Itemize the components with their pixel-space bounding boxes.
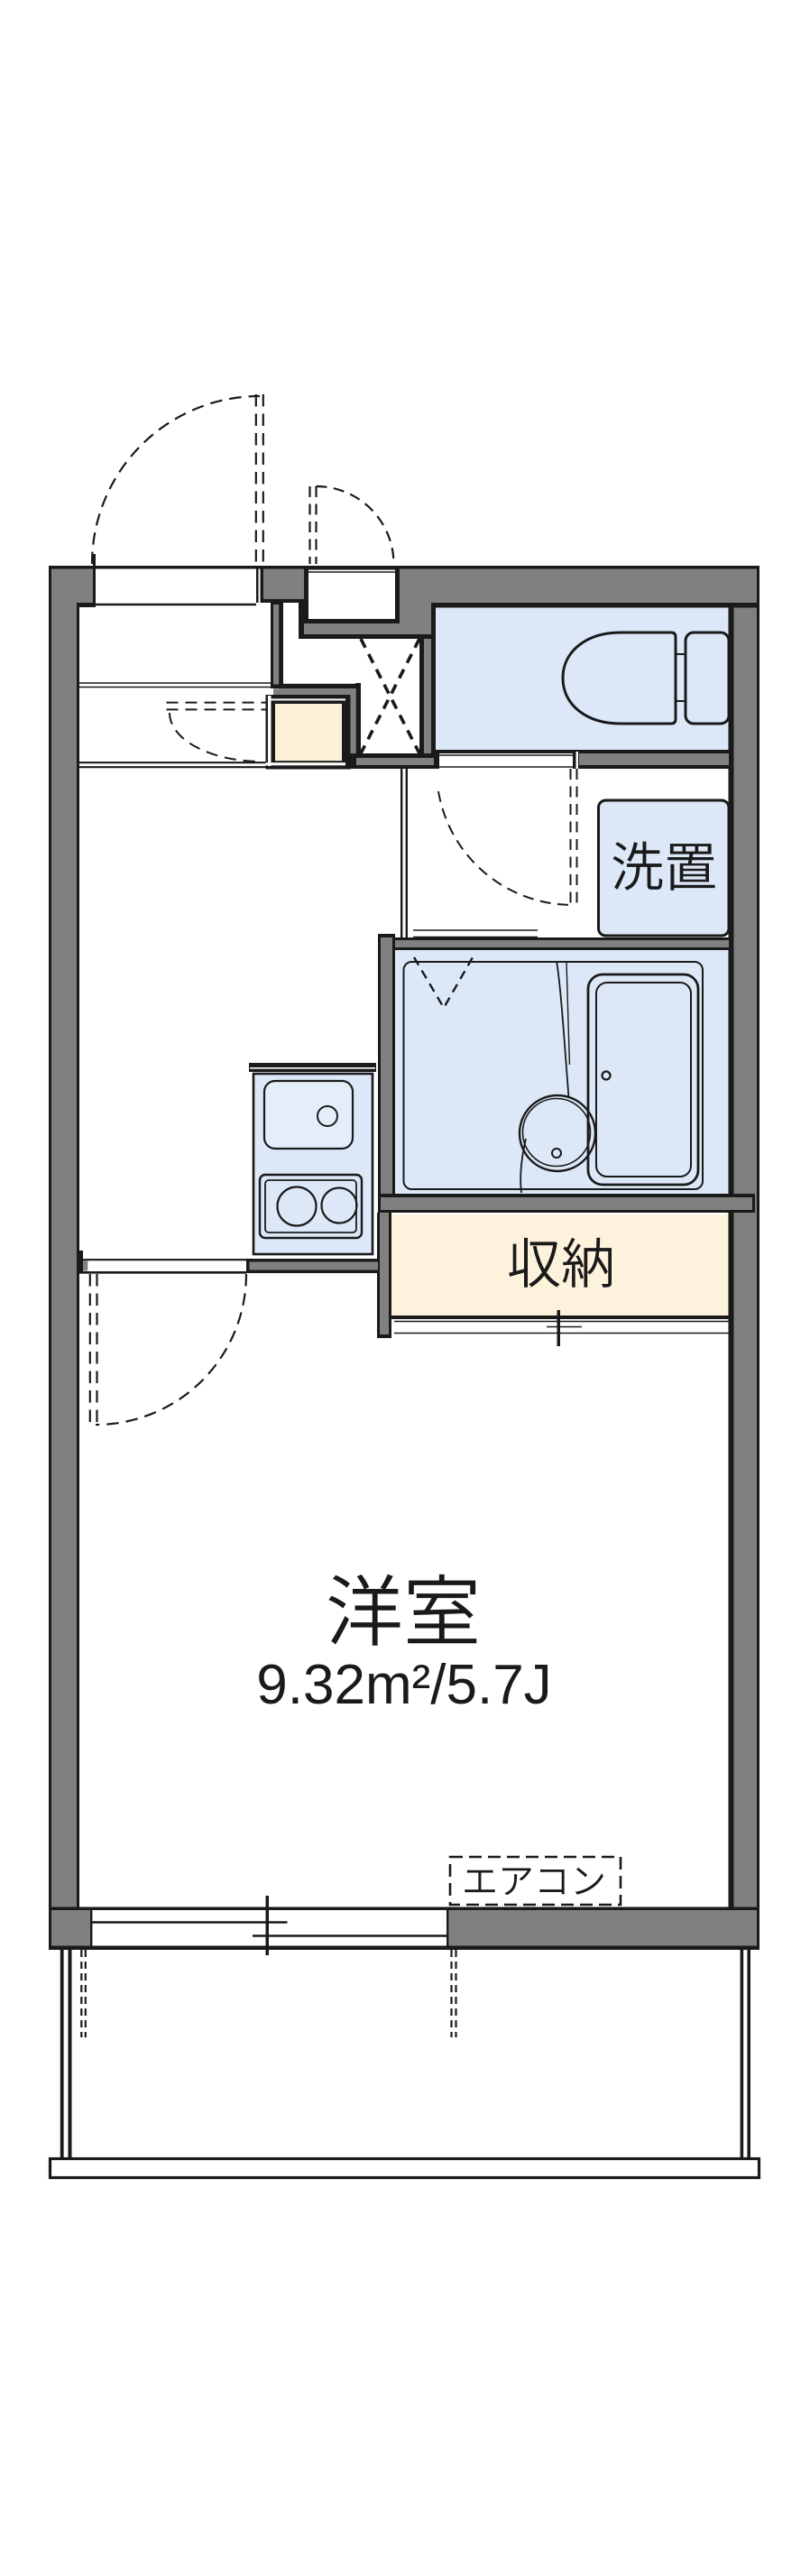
svg-text:9.32m²/5.7J: 9.32m²/5.7J: [256, 1654, 551, 1716]
